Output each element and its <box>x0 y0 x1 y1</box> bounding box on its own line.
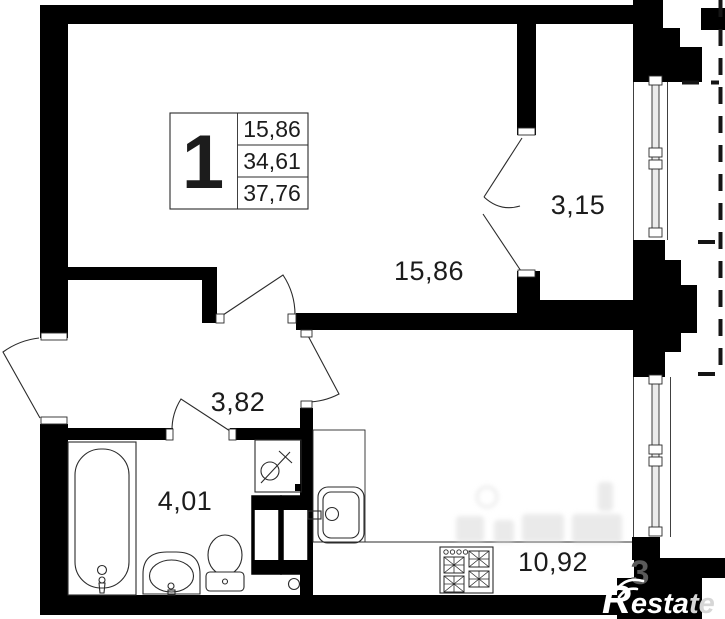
unit-number: 1 <box>182 120 224 205</box>
legend-value-2: 34,61 <box>243 148 301 174</box>
hallway-area: 3,82 <box>211 387 266 417</box>
kitchen-window <box>634 375 671 537</box>
floor-drain <box>289 579 300 590</box>
bathroom-sink <box>143 552 200 595</box>
washer-cabinet-left <box>253 497 280 573</box>
walls <box>40 0 725 619</box>
washer-cabinet-right <box>282 497 309 573</box>
watermark <box>456 482 622 543</box>
living-room-area: 15,86 <box>394 256 464 286</box>
pier-mid-right <box>633 240 697 377</box>
balcony-door <box>483 128 535 277</box>
bathroom-area: 4,01 <box>158 486 213 516</box>
unit-legend: 1 15,86 34,61 37,76 <box>170 113 308 209</box>
watermark-digit: 3 <box>631 554 650 592</box>
kitchen-door <box>301 330 339 408</box>
kitchen-area: 10,92 <box>518 547 588 577</box>
toilet <box>206 535 244 591</box>
kitchen-sink <box>308 487 364 543</box>
entrance-door <box>3 333 67 424</box>
balcony-area: 3,15 <box>551 190 606 220</box>
floor-plan-svg: 1 15,86 34,61 37,76 15,86 3,15 3,82 4,01… <box>0 0 725 619</box>
floor-plan-page: 1 15,86 34,61 37,76 15,86 3,15 3,82 4,01… <box>0 0 725 619</box>
legend-value-1: 15,86 <box>243 116 301 142</box>
legend-value-3: 37,76 <box>243 180 301 206</box>
pier-top-right <box>633 0 702 82</box>
logo-te: te <box>689 588 715 619</box>
logo-esta: esta <box>631 588 689 619</box>
water-heater <box>255 440 301 492</box>
bathtub <box>68 442 136 595</box>
balcony-window <box>634 76 668 240</box>
stove <box>440 547 493 593</box>
living-room-door <box>216 275 296 323</box>
logo-letter-r: R <box>602 578 631 619</box>
